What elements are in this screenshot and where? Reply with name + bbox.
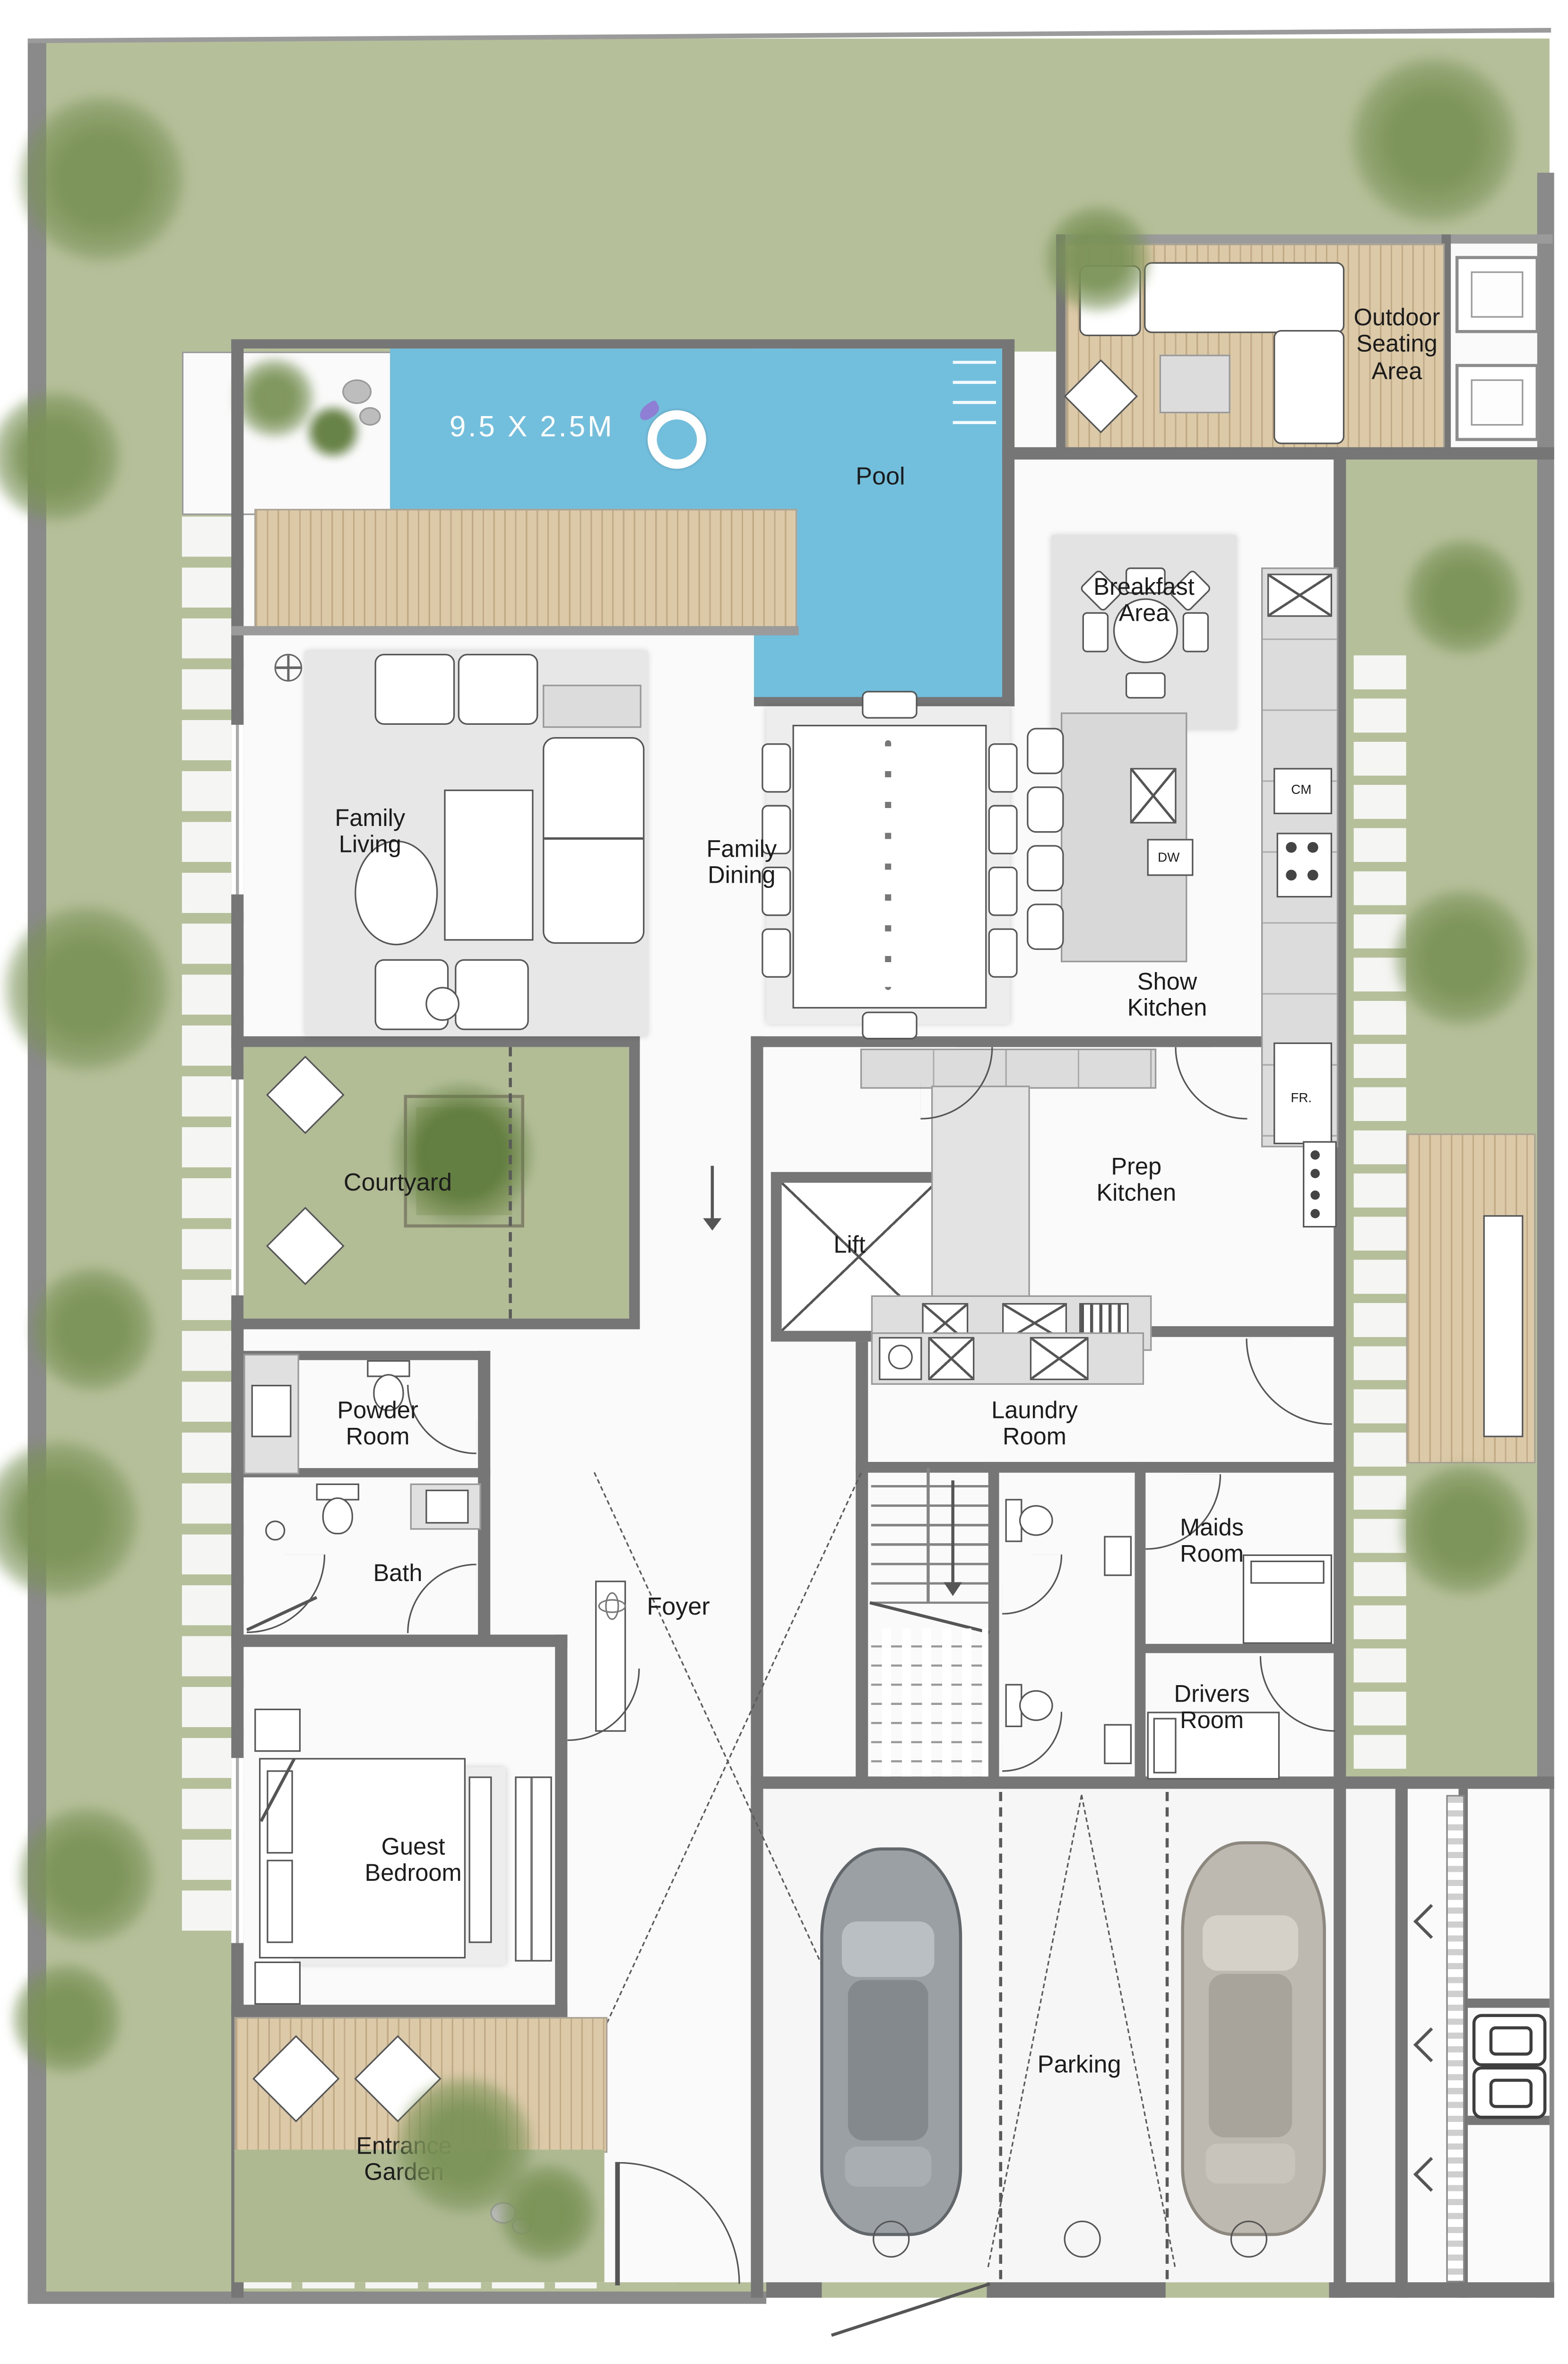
washing-machine-drum xyxy=(888,1345,913,1369)
planter-rock xyxy=(342,379,372,404)
burner-icon xyxy=(1286,842,1297,853)
kitchen-island xyxy=(1061,713,1187,962)
wall-courtyard-bottom xyxy=(231,1319,640,1330)
living-coffee-table xyxy=(444,790,533,941)
courtyard-label: Courtyard xyxy=(297,1171,498,1198)
kitchen-stool xyxy=(1027,845,1064,891)
outdoor-sofa-arm xyxy=(1273,330,1344,444)
car-light xyxy=(1181,1841,1326,2236)
dining-chair xyxy=(988,805,1018,854)
breakfast-chair xyxy=(1126,672,1166,698)
bath-sink xyxy=(425,1490,468,1524)
pool-planter xyxy=(182,352,392,515)
coffee-machine-label: CM xyxy=(1291,783,1311,796)
wall-living-top xyxy=(231,626,798,635)
wall-prep-top xyxy=(751,1036,1346,1047)
pool-steps xyxy=(953,361,996,441)
ground-floor-plan: 9.5 X 2.5M Pool Outdoor Seating Area xyxy=(0,0,1568,2364)
dining-chair xyxy=(988,743,1018,792)
burner-icon xyxy=(1286,870,1297,881)
bath-toilet-bowl xyxy=(322,1497,353,1534)
burner-icon xyxy=(1310,1191,1320,1200)
living-sofa xyxy=(543,737,644,944)
corridor-arrow-head xyxy=(703,1218,721,1231)
kitchen-top-appliance xyxy=(1267,574,1332,617)
outdoor-armchair xyxy=(1079,265,1141,336)
house-floor-sliver xyxy=(1014,352,1061,451)
living-armchair-1 xyxy=(375,654,455,725)
kitchen-stool xyxy=(1027,728,1064,774)
wall-stairs-right xyxy=(988,1462,999,1786)
guest-pillow-2 xyxy=(267,1860,293,1943)
stair-center-rail xyxy=(927,1468,930,1604)
show-kitchen-label: Show Kitchen xyxy=(1106,969,1229,1023)
dining-chandelier xyxy=(885,740,891,990)
cell2-sink xyxy=(1104,1724,1132,1764)
dining-chair xyxy=(762,928,791,977)
living-armchair-2 xyxy=(458,654,538,725)
wall-pool-top xyxy=(231,339,1014,349)
outdoor-coffee-table xyxy=(1160,355,1230,413)
car-rear-window xyxy=(845,2147,931,2187)
east-patio-bench xyxy=(1483,1215,1524,1437)
guest-nightstand-2 xyxy=(254,1962,301,2005)
wall-guest-right xyxy=(555,1634,567,2017)
car-roof xyxy=(848,1980,928,2140)
window-left-guest xyxy=(231,1758,243,1943)
powder-sink xyxy=(251,1385,292,1437)
parking-marker xyxy=(1230,2221,1267,2258)
living-armchair-4 xyxy=(455,959,529,1030)
stair-arrow-line xyxy=(951,1480,954,1582)
annex-window xyxy=(1455,256,1539,333)
maids-room-label: Maids Room xyxy=(1158,1515,1265,1569)
island-sink xyxy=(1130,768,1177,823)
car-windshield xyxy=(842,1921,935,1977)
wall-courtyard-right xyxy=(629,1036,640,1330)
laundry-sink xyxy=(928,1337,974,1380)
cell1-sink xyxy=(1104,1536,1132,1576)
dining-chair xyxy=(862,691,917,719)
wall-parking-bottom-2 xyxy=(987,2282,1165,2298)
guest-wardrobe xyxy=(515,1776,552,1961)
foyer-label: Foyer xyxy=(617,1595,740,1622)
wall-parking-bottom-3 xyxy=(1329,2282,1554,2298)
dining-chair xyxy=(988,867,1018,916)
family-dining-label: Family Dining xyxy=(680,837,803,890)
page-title: GROUND FLOOR xyxy=(34,2356,596,2364)
pool-float-icon xyxy=(648,410,706,469)
powder-room-label: Powder Room xyxy=(308,1398,447,1451)
breakfast-label: Breakfast Area xyxy=(1076,574,1212,628)
car-dark xyxy=(820,1847,962,2236)
bath-label: Bath xyxy=(344,1561,451,1588)
wall-utility-divider-1 xyxy=(1468,1999,1550,2008)
drivers-room-label: Drivers Room xyxy=(1150,1682,1273,1735)
pool-label: Pool xyxy=(811,464,950,492)
boundary-wall-bottom xyxy=(28,2292,766,2304)
ceiling-fan-icon xyxy=(275,654,303,682)
kitchen-stool xyxy=(1027,904,1064,950)
burner-icon xyxy=(1310,1150,1320,1160)
burner-icon xyxy=(1308,842,1318,853)
annex-window-2 xyxy=(1455,364,1539,441)
wall-guest-bottom xyxy=(231,2005,567,2017)
deck-wall-left xyxy=(1056,235,1066,451)
prep-tall-cabinet xyxy=(931,1086,1030,1302)
car-roof xyxy=(1209,1974,1292,2138)
outdoor-sofa-top xyxy=(1144,262,1344,333)
burner-icon xyxy=(1310,1209,1320,1218)
parking-marker xyxy=(1064,2221,1101,2258)
wall-spine xyxy=(751,1036,763,2298)
guest-nightstand-1 xyxy=(254,1709,301,1752)
floor-plan-page: 9.5 X 2.5M Pool Outdoor Seating Area xyxy=(0,0,1568,2364)
prep-counter-top xyxy=(860,1049,1156,1089)
parking-marker xyxy=(873,2221,910,2258)
wall-bath-bottom xyxy=(231,1634,567,1647)
parking-line-right xyxy=(1166,1792,1169,2279)
lift-label: Lift xyxy=(803,1233,896,1260)
planter-rock-2 xyxy=(359,407,381,426)
stepping-stones-right xyxy=(1354,655,1406,1907)
stair-arrow-head xyxy=(944,1582,962,1596)
burner-icon xyxy=(1310,1169,1320,1178)
burner-icon xyxy=(1308,870,1318,881)
appliance-icon xyxy=(1473,2014,1547,2067)
cell1-toilet-bowl xyxy=(1019,1505,1053,1536)
kitchen-stool xyxy=(1027,786,1064,833)
wall-foyer-right xyxy=(856,1326,868,1789)
fridge-label: FR. xyxy=(1291,1091,1312,1104)
bath-drain xyxy=(265,1521,285,1540)
wall-pool-right xyxy=(1002,339,1014,706)
utility-shutter-strip xyxy=(1446,1795,1464,2283)
outdoor-seating-label: Outdoor Seating Area xyxy=(1337,305,1457,386)
courtyard-glass-line xyxy=(509,1047,512,1319)
wall-parking-right xyxy=(1395,1776,1408,2297)
window-left-living xyxy=(231,725,243,895)
stair-treads-lower xyxy=(871,1628,988,1776)
window-left-courtyard xyxy=(231,1079,243,1295)
corridor-arrow-line xyxy=(711,1166,714,1218)
pool-dimensions-label: 9.5 X 2.5M xyxy=(450,412,615,446)
dishwasher-label: DW xyxy=(1158,851,1179,864)
car-windshield xyxy=(1203,1915,1298,1971)
entrance-rock xyxy=(490,2202,516,2224)
courtyard-planter xyxy=(404,1095,524,1227)
wall-breakfast-top xyxy=(1002,447,1554,460)
living-round-table xyxy=(425,987,459,1021)
dining-chair xyxy=(862,1012,917,1040)
family-living-label: Family Living xyxy=(308,806,432,860)
wall-courtyard-top xyxy=(231,1036,640,1047)
wall-maids-left xyxy=(1135,1462,1146,1786)
show-kitchen-cooktop xyxy=(1277,833,1332,897)
wall-parking-bottom-1 xyxy=(766,2282,822,2298)
entrance-rock-2 xyxy=(512,2217,532,2234)
wall-maids-drivers-divider xyxy=(1135,1644,1346,1653)
entrance-garden-label: Entrance Garden xyxy=(327,2134,481,2187)
boundary-wall-left xyxy=(28,39,46,2301)
living-side-table xyxy=(543,685,641,728)
guest-bedroom-label: Guest Bedroom xyxy=(336,1834,490,1888)
staircase xyxy=(871,1468,988,1776)
dining-chair xyxy=(988,928,1018,977)
prep-kitchen-label: Prep Kitchen xyxy=(1074,1155,1198,1208)
laundry-sink-2 xyxy=(1030,1337,1089,1380)
pool-deck xyxy=(254,509,797,632)
deck-wall-top xyxy=(1056,235,1552,244)
dining-chair xyxy=(762,743,791,792)
parking-label: Parking xyxy=(995,2052,1164,2080)
appliance-icon xyxy=(1473,2067,1547,2119)
laundry-label: Laundry Room xyxy=(957,1398,1111,1451)
car-rear-window xyxy=(1206,2144,1295,2184)
